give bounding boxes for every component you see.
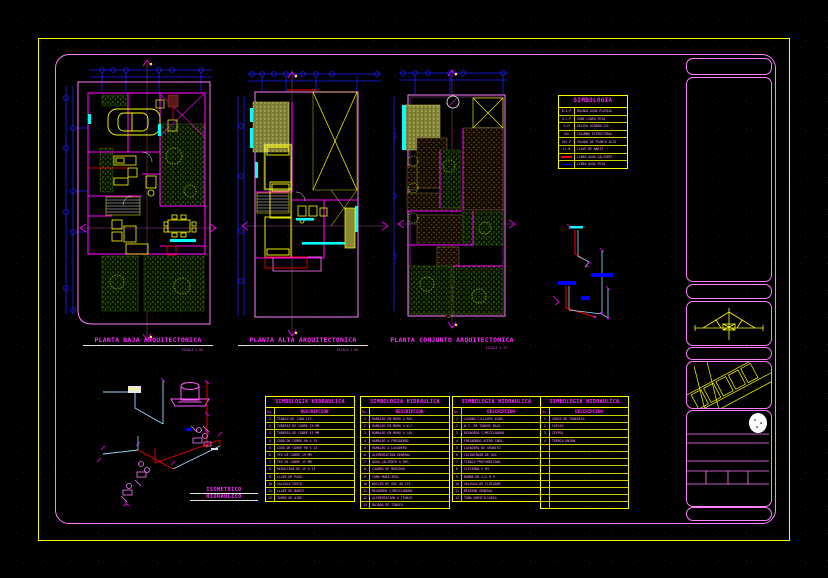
hydraulic-table-row: 2COFLEX bbox=[541, 423, 628, 430]
row-number: 12 bbox=[266, 495, 275, 501]
hydraulic-table-row: 9LLAVE DE PASO bbox=[266, 474, 354, 481]
symbology-desc: SALIDA HIDRAULICA bbox=[575, 124, 627, 128]
symbology-row: LINEA AGUA FRIA bbox=[559, 161, 627, 168]
hydraulic-table-row: 12ALIMENTACION A TINACO bbox=[361, 495, 449, 502]
hydraulic-table-row: 6CALENTADOR DE GAS bbox=[453, 452, 540, 459]
symbology-abbr bbox=[559, 154, 575, 161]
row-number: 2 bbox=[266, 423, 275, 429]
hydraulic-table-row: 1LAVABO C/LLAVES ECON. bbox=[453, 416, 540, 423]
plan-scale: ESCALA 1:50 bbox=[238, 348, 368, 352]
row-description bbox=[550, 495, 628, 501]
col-no-header: No. bbox=[361, 408, 370, 415]
row-description bbox=[550, 481, 628, 487]
row-number: 9 bbox=[453, 474, 462, 480]
hydraulic-table-row: 11MEDIDOR GENERAL bbox=[453, 488, 540, 495]
col-no-header: No. bbox=[541, 408, 550, 415]
row-description: RAMALEO EN MURO A LAV. bbox=[370, 430, 449, 436]
row-description bbox=[550, 474, 628, 480]
row-description: FREGADERO ACERO INOX. bbox=[462, 438, 540, 444]
col-no-header: No. bbox=[453, 408, 462, 415]
hydraulic-table-row: 5CODO DE COBRE 90 X 13 bbox=[266, 445, 354, 452]
row-number: 13 bbox=[361, 502, 370, 508]
stairs bbox=[257, 193, 289, 213]
titleblock-strip-bottom bbox=[686, 507, 772, 521]
symbology-desc: VOLADO DE PLANTA ALTA bbox=[575, 140, 627, 144]
plan-conjunto-title-block: PLANTA CONJUNTO ARQUITECTONICA ESCALA 1:… bbox=[387, 336, 517, 350]
row-number: 12 bbox=[361, 495, 370, 501]
hydraulic-table: SIMBOLOGIA HIDRAULICANo.DESCRIPCION1CRUC… bbox=[540, 396, 629, 509]
row-description: RAMALEO EN MURO A W.C. bbox=[370, 423, 449, 429]
hydraulic-table-row: 8CISTERNA 5 M3 bbox=[453, 466, 540, 473]
hydraulic-table-row: 12JARRO DE AIRE bbox=[266, 495, 354, 501]
row-number: 4 bbox=[266, 438, 275, 444]
line-type-swatch bbox=[561, 156, 572, 158]
row-number: 4 bbox=[361, 438, 370, 444]
hydraulic-table-row bbox=[541, 481, 628, 488]
row-number: 7 bbox=[453, 459, 462, 465]
plan-conjunto-drawing bbox=[393, 66, 520, 342]
symbology-rows: B.A.PBAJADA AGUA PLUVIALS.L.FSUBE LINEA … bbox=[559, 108, 627, 168]
row-number: 3 bbox=[266, 430, 275, 436]
row-description: AGUA CALIENTE A REG. bbox=[370, 459, 449, 465]
symbology-abbr bbox=[559, 161, 575, 168]
row-description: TUERCA UNION bbox=[550, 438, 628, 444]
symbology-row: S-HSALIDA HIDRAULICA bbox=[559, 123, 627, 131]
row-description: CALENTADOR DE GAS bbox=[462, 452, 540, 458]
row-number: 8 bbox=[361, 466, 370, 472]
plan-title: PLANTA ALTA ARQUITECTONICA bbox=[238, 336, 368, 344]
hydraulic-table-row: 2W.C. DE TANQUE BAJO bbox=[453, 423, 540, 430]
row-description: REDUCCION DE 19 A 13 bbox=[275, 466, 354, 472]
stairs bbox=[106, 197, 140, 215]
hydraulic-table-title: SIMBOLOGIA HIDRAULICA bbox=[361, 397, 449, 408]
hydraulic-table-row: 10BOILER DE GAS 40 LTS. bbox=[361, 481, 449, 488]
hydraulic-table-row: 3TUBERIA DE COBRE 13 MM bbox=[266, 430, 354, 437]
plan-baja-title-block: PLANTA BAJA ARQUITECTONICA ESCALA 1:50 bbox=[83, 336, 213, 352]
beds bbox=[265, 145, 291, 257]
hydraulic-table-row: 2TUBERIA DE COBRE 19 MM bbox=[266, 423, 354, 430]
row-number: 3 bbox=[453, 430, 462, 436]
hydraulic-table-row: 6TEE DE COBRE 19 MM bbox=[266, 452, 354, 459]
hydraulic-table-row: 7TEE DE COBRE 13 MM bbox=[266, 459, 354, 466]
row-number: 4 bbox=[541, 438, 550, 444]
dimension-lines-top bbox=[90, 68, 212, 92]
row-number: 2 bbox=[453, 423, 462, 429]
row-description: REGADERA C/MEZCLADORA bbox=[462, 430, 540, 436]
symbology-desc: SUBE LINEA FRIA bbox=[575, 117, 627, 121]
col-desc-header: DESCRIPCION bbox=[370, 408, 449, 415]
symbology-row: Vol.PVOLADO DE PLANTA ALTA bbox=[559, 138, 627, 146]
symbology-abbr: Ll.N bbox=[559, 146, 575, 153]
hydraulic-table-header: No.DESCRIPCION bbox=[361, 408, 449, 416]
hydraulic-table-row: 3REGADERA C/MEZCLADORA bbox=[453, 430, 540, 437]
cad-drawing-sheet: { "plans": [ {"title": "PLANTA BAJA ARQU… bbox=[0, 0, 828, 578]
hydraulic-table-row: 10VALVULA DE FLOTADOR bbox=[453, 481, 540, 488]
symbology-row: LINEA AGUA CALIENTE bbox=[559, 154, 627, 162]
row-description: JARRO DE AIRE bbox=[275, 495, 354, 501]
tinaco-symbol bbox=[171, 383, 209, 407]
row-number: 6 bbox=[361, 452, 370, 458]
row-description: MEDIDOR GENERAL bbox=[462, 488, 540, 494]
dimension-lines-left bbox=[238, 96, 244, 316]
hydraulic-table-row: 4CODO DE COBRE 90 X 19 bbox=[266, 438, 354, 445]
plan-title: PLANTA CONJUNTO ARQUITECTONICA bbox=[387, 336, 517, 344]
hydraulic-table-header: No.DESCRIPCION bbox=[541, 408, 628, 416]
hydraulic-table-row: 3CESPOL bbox=[541, 430, 628, 437]
symbology-row: S.L.FSUBE LINEA FRIA bbox=[559, 116, 627, 124]
hydraulic-table-row: 1RAMALEO EN MURO A REG. bbox=[361, 416, 449, 423]
isometric-label: ISOMETRICO HIDRAULICO bbox=[190, 487, 258, 501]
symbology-desc: BAJADA AGUA PLUVIAL bbox=[575, 109, 627, 113]
symbology-abbr: S-H bbox=[559, 123, 575, 130]
hydraulic-table-row bbox=[541, 495, 628, 502]
row-description: BAJADA DE TINACO bbox=[370, 502, 449, 508]
hydraulic-table: SIMBOLOGIA HIDRAULICANo.DESCRIPCION1RAMA… bbox=[360, 396, 450, 509]
row-number: 8 bbox=[453, 466, 462, 472]
row-description: COFLEX bbox=[550, 423, 628, 429]
row-number bbox=[541, 488, 550, 494]
row-number: 2 bbox=[361, 423, 370, 429]
row-description bbox=[550, 466, 628, 472]
dimension-lines-top bbox=[399, 71, 508, 94]
riser-isometric-drawing bbox=[545, 222, 640, 322]
hydraulic-table-row bbox=[541, 466, 628, 473]
hydraulic-table-row: 1TINACO DE 1100 LTS. bbox=[266, 416, 354, 423]
row-description: TOMA DOMICILIARIA bbox=[462, 495, 540, 501]
titleblock-strip-top bbox=[686, 58, 772, 75]
row-number: 11 bbox=[266, 488, 275, 494]
hydraulic-table-row: 4RAMALEO A FREGADERO bbox=[361, 438, 449, 445]
title-underline bbox=[83, 345, 213, 346]
row-description: CRUCE DE TUBERIAS bbox=[550, 416, 628, 422]
hydraulic-table-row: 8REDUCCION DE 19 A 13 bbox=[266, 466, 354, 473]
hydraulic-table-row: 9BOMBA DE 1/2 H.P. bbox=[453, 474, 540, 481]
row-description: RAMALEO A LAVADERO bbox=[370, 445, 449, 451]
symbology-desc: COLUMNA ESTRUCTURAL bbox=[575, 132, 627, 136]
row-description bbox=[550, 502, 628, 508]
row-number bbox=[541, 474, 550, 480]
row-description bbox=[550, 452, 628, 458]
hydraulic-table-row: 7AGUA CALIENTE A REG. bbox=[361, 459, 449, 466]
row-number: 7 bbox=[266, 459, 275, 465]
row-description: TUBERIA DE COBRE 13 MM bbox=[275, 430, 354, 436]
hydraulic-table-title: SIMBOLOGIA HIDRAULICA bbox=[453, 397, 540, 408]
hydraulic-table-row: 2RAMALEO EN MURO A W.C. bbox=[361, 423, 449, 430]
row-number: 8 bbox=[266, 466, 275, 472]
symbology-abbr: S.L.F bbox=[559, 116, 575, 123]
row-number bbox=[541, 502, 550, 508]
symbology-desc: LINEA AGUA FRIA bbox=[575, 162, 627, 166]
titleblock-notes-panel bbox=[686, 77, 772, 282]
plan-baja-drawing bbox=[62, 56, 234, 346]
symbology-abbr: COL bbox=[559, 131, 575, 138]
dimension-lines-left bbox=[393, 96, 396, 311]
row-number: 3 bbox=[361, 430, 370, 436]
symbology-desc: LLAVE DE NARIZ bbox=[575, 147, 627, 151]
row-number: 10 bbox=[453, 481, 462, 487]
double-height-x bbox=[313, 92, 357, 226]
row-number: 1 bbox=[361, 416, 370, 422]
titleblock-location-box bbox=[686, 361, 772, 409]
title-underline bbox=[238, 345, 368, 346]
symbology-row: Ll.NLLAVE DE NARIZ bbox=[559, 146, 627, 154]
titleblock-table bbox=[686, 410, 772, 507]
hydraulic-table-row bbox=[541, 445, 628, 452]
row-number: 2 bbox=[541, 423, 550, 429]
col-desc-header: DESCRIPCION bbox=[550, 408, 628, 415]
row-number: 10 bbox=[361, 481, 370, 487]
row-number bbox=[541, 452, 550, 458]
row-description: LLAVE DE NARIZ bbox=[275, 488, 354, 494]
row-description: ALIMENTACION GENERAL bbox=[370, 452, 449, 458]
hydraulic-table-row: 11REGADERA C/MEZCLADORA bbox=[361, 488, 449, 495]
car-symbol bbox=[108, 109, 160, 135]
row-description bbox=[550, 445, 628, 451]
row-description bbox=[550, 459, 628, 465]
row-number: 1 bbox=[266, 416, 275, 422]
hydraulic-table-row: 12TOMA DOMICILIARIA bbox=[453, 495, 540, 501]
row-description: CUADRO DE MEDIDOR bbox=[370, 466, 449, 472]
row-description: LAVADERO DE GRANITO bbox=[462, 445, 540, 451]
hydraulic-table-row: 13BAJADA DE TINACO bbox=[361, 502, 449, 508]
symbology-legend: SIMBOLOGIA B.A.PBAJADA AGUA PLUVIALS.L.F… bbox=[558, 95, 628, 169]
row-description: RAMALEO A FREGADERO bbox=[370, 438, 449, 444]
plan-scale: ESCALA 1:75 bbox=[387, 346, 517, 350]
row-number bbox=[541, 495, 550, 501]
cyan-accent bbox=[302, 242, 346, 245]
titleblock-strip bbox=[686, 284, 772, 299]
hydraulic-table-row: 4FREGADERO ACERO INOX. bbox=[453, 438, 540, 445]
hydraulic-table-row bbox=[541, 502, 628, 508]
line-type-swatch bbox=[561, 164, 572, 166]
row-number: 4 bbox=[453, 438, 462, 444]
hydraulic-table-row: 6ALIMENTACION GENERAL bbox=[361, 452, 449, 459]
row-number bbox=[541, 466, 550, 472]
row-number: 5 bbox=[361, 445, 370, 451]
row-description: RAMALEO EN MURO A REG. bbox=[370, 416, 449, 422]
row-number: 11 bbox=[453, 488, 462, 494]
hydraulic-table-header: No.DESCRIPCION bbox=[453, 408, 540, 416]
row-description: TEE DE COBRE 13 MM bbox=[275, 459, 354, 465]
row-description: BOMBA DE 1/2 H.P. bbox=[462, 474, 540, 480]
hydraulic-table-title: SIMBOLOGIA HIDRAULICA bbox=[266, 397, 354, 408]
symbology-abbr: B.A.P bbox=[559, 108, 575, 115]
fixture-cluster bbox=[121, 462, 150, 503]
dimension-lines-top bbox=[248, 72, 381, 92]
row-description: CODO DE COBRE 90 X 13 bbox=[275, 445, 354, 451]
row-description: TEE DE COBRE 19 MM bbox=[275, 452, 354, 458]
row-number: 5 bbox=[453, 445, 462, 451]
row-description: REGADERA C/MEZCLADORA bbox=[370, 488, 449, 494]
seal-stamp bbox=[749, 413, 767, 433]
row-number: 9 bbox=[361, 474, 370, 480]
row-description: LLAVE DE PASO bbox=[275, 474, 354, 480]
truss-symbol bbox=[687, 302, 771, 345]
col-desc-header: DESCRIPCION bbox=[462, 408, 540, 415]
row-description: CODO DE COBRE 90 X 19 bbox=[275, 438, 354, 444]
row-description: TOMA MUNICIPAL bbox=[370, 474, 449, 480]
col-desc-header: DESCRIPCION bbox=[275, 408, 354, 415]
row-description bbox=[550, 488, 628, 494]
plan-alta-title-block: PLANTA ALTA ARQUITECTONICA ESCALA 1:50 bbox=[238, 336, 368, 352]
hydraulic-table-row: 5LAVADERO DE GRANITO bbox=[453, 445, 540, 452]
titleblock-truss-box bbox=[686, 301, 772, 346]
row-description: TUBERIA DE COBRE 19 MM bbox=[275, 423, 354, 429]
row-number: 3 bbox=[541, 430, 550, 436]
symbology-row: B.A.PBAJADA AGUA PLUVIAL bbox=[559, 108, 627, 116]
symbology-title: SIMBOLOGIA bbox=[559, 96, 627, 108]
titleblock-strip bbox=[686, 347, 772, 360]
hydraulic-table: SIMBOLOGIA HIDRAULICANo.DESCRIPCION1LAVA… bbox=[452, 396, 541, 502]
row-number: 6 bbox=[453, 452, 462, 458]
row-number: 1 bbox=[541, 416, 550, 422]
hydraulic-table-header: No.DESCRIPCION bbox=[266, 408, 354, 416]
titleblock-table-grid bbox=[687, 411, 769, 504]
row-number bbox=[541, 459, 550, 465]
isometric-label-line1: ISOMETRICO bbox=[190, 487, 258, 494]
kitchen-fixtures bbox=[114, 156, 156, 196]
row-description: VALVULA CHECK bbox=[275, 481, 354, 487]
row-description: TINACO DE 1100 LTS. bbox=[275, 416, 354, 422]
hydraulic-table-row: 7TINACO PREFABRICADO bbox=[453, 459, 540, 466]
col-no-header: No. bbox=[266, 408, 275, 415]
plan-title: PLANTA BAJA ARQUITECTONICA bbox=[83, 336, 213, 344]
fixture-cluster bbox=[191, 426, 211, 446]
row-number bbox=[541, 481, 550, 487]
row-description: LAVABO C/LLAVES ECON. bbox=[462, 416, 540, 422]
row-description: VALVULA DE FLOTADOR bbox=[462, 481, 540, 487]
branch-arrows bbox=[97, 432, 222, 465]
hydraulic-table-row bbox=[541, 474, 628, 481]
hydraulic-table-title: SIMBOLOGIA HIDRAULICA bbox=[541, 397, 628, 408]
plan-scale: ESCALA 1:50 bbox=[83, 348, 213, 352]
symbology-row: COLCOLUMNA ESTRUCTURAL bbox=[559, 131, 627, 139]
symbology-abbr: Vol.P bbox=[559, 138, 575, 145]
row-number: 5 bbox=[266, 445, 275, 451]
row-number: 9 bbox=[266, 474, 275, 480]
row-number: 1 bbox=[453, 416, 462, 422]
hydraulic-table-row: 5RAMALEO A LAVADERO bbox=[361, 445, 449, 452]
location-map-sketch bbox=[687, 362, 771, 408]
hydraulic-table-row: 3RAMALEO EN MURO A LAV. bbox=[361, 430, 449, 437]
hydraulic-table-row bbox=[541, 488, 628, 495]
row-description: BOILER DE GAS 40 LTS. bbox=[370, 481, 449, 487]
hydraulic-table-row: 1CRUCE DE TUBERIAS bbox=[541, 416, 628, 423]
hydraulic-table: SIMBOLOGIA HIDRAULICANo.DESCRIPCION1TINA… bbox=[265, 396, 355, 502]
hydraulic-table-row: 8CUADRO DE MEDIDOR bbox=[361, 466, 449, 473]
row-number: 7 bbox=[361, 459, 370, 465]
dimension-lines-left bbox=[64, 86, 88, 314]
row-number: 10 bbox=[266, 481, 275, 487]
row-description: TINACO PREFABRICADO bbox=[462, 459, 540, 465]
hydraulic-table-row bbox=[541, 452, 628, 459]
symbology-desc: LINEA AGUA CALIENTE bbox=[575, 155, 627, 159]
hydraulic-table-row: 10VALVULA CHECK bbox=[266, 481, 354, 488]
row-number: 11 bbox=[361, 488, 370, 494]
isometric-label-line2: HIDRAULICO bbox=[190, 494, 258, 501]
cyan-accent bbox=[170, 239, 196, 242]
hydraulic-table-row bbox=[541, 459, 628, 466]
row-number bbox=[541, 445, 550, 451]
hydraulic-table-row: 11LLAVE DE NARIZ bbox=[266, 488, 354, 495]
plan-alta-drawing bbox=[236, 66, 394, 342]
valve-box bbox=[128, 386, 141, 393]
row-description: W.C. DE TANQUE BAJO bbox=[462, 423, 540, 429]
hydraulic-table-row: 4TUERCA UNION bbox=[541, 438, 628, 445]
hydraulic-table-row: 9TOMA MUNICIPAL bbox=[361, 474, 449, 481]
skylight-x bbox=[473, 98, 503, 128]
row-number: 6 bbox=[266, 452, 275, 458]
terrace-hatch bbox=[253, 102, 289, 152]
living-furniture bbox=[112, 215, 196, 254]
row-description: CISTERNA 5 M3 bbox=[462, 466, 540, 472]
row-description: CESPOL bbox=[550, 430, 628, 436]
row-number: 12 bbox=[453, 495, 462, 501]
row-description: ALIMENTACION A TINACO bbox=[370, 495, 449, 501]
